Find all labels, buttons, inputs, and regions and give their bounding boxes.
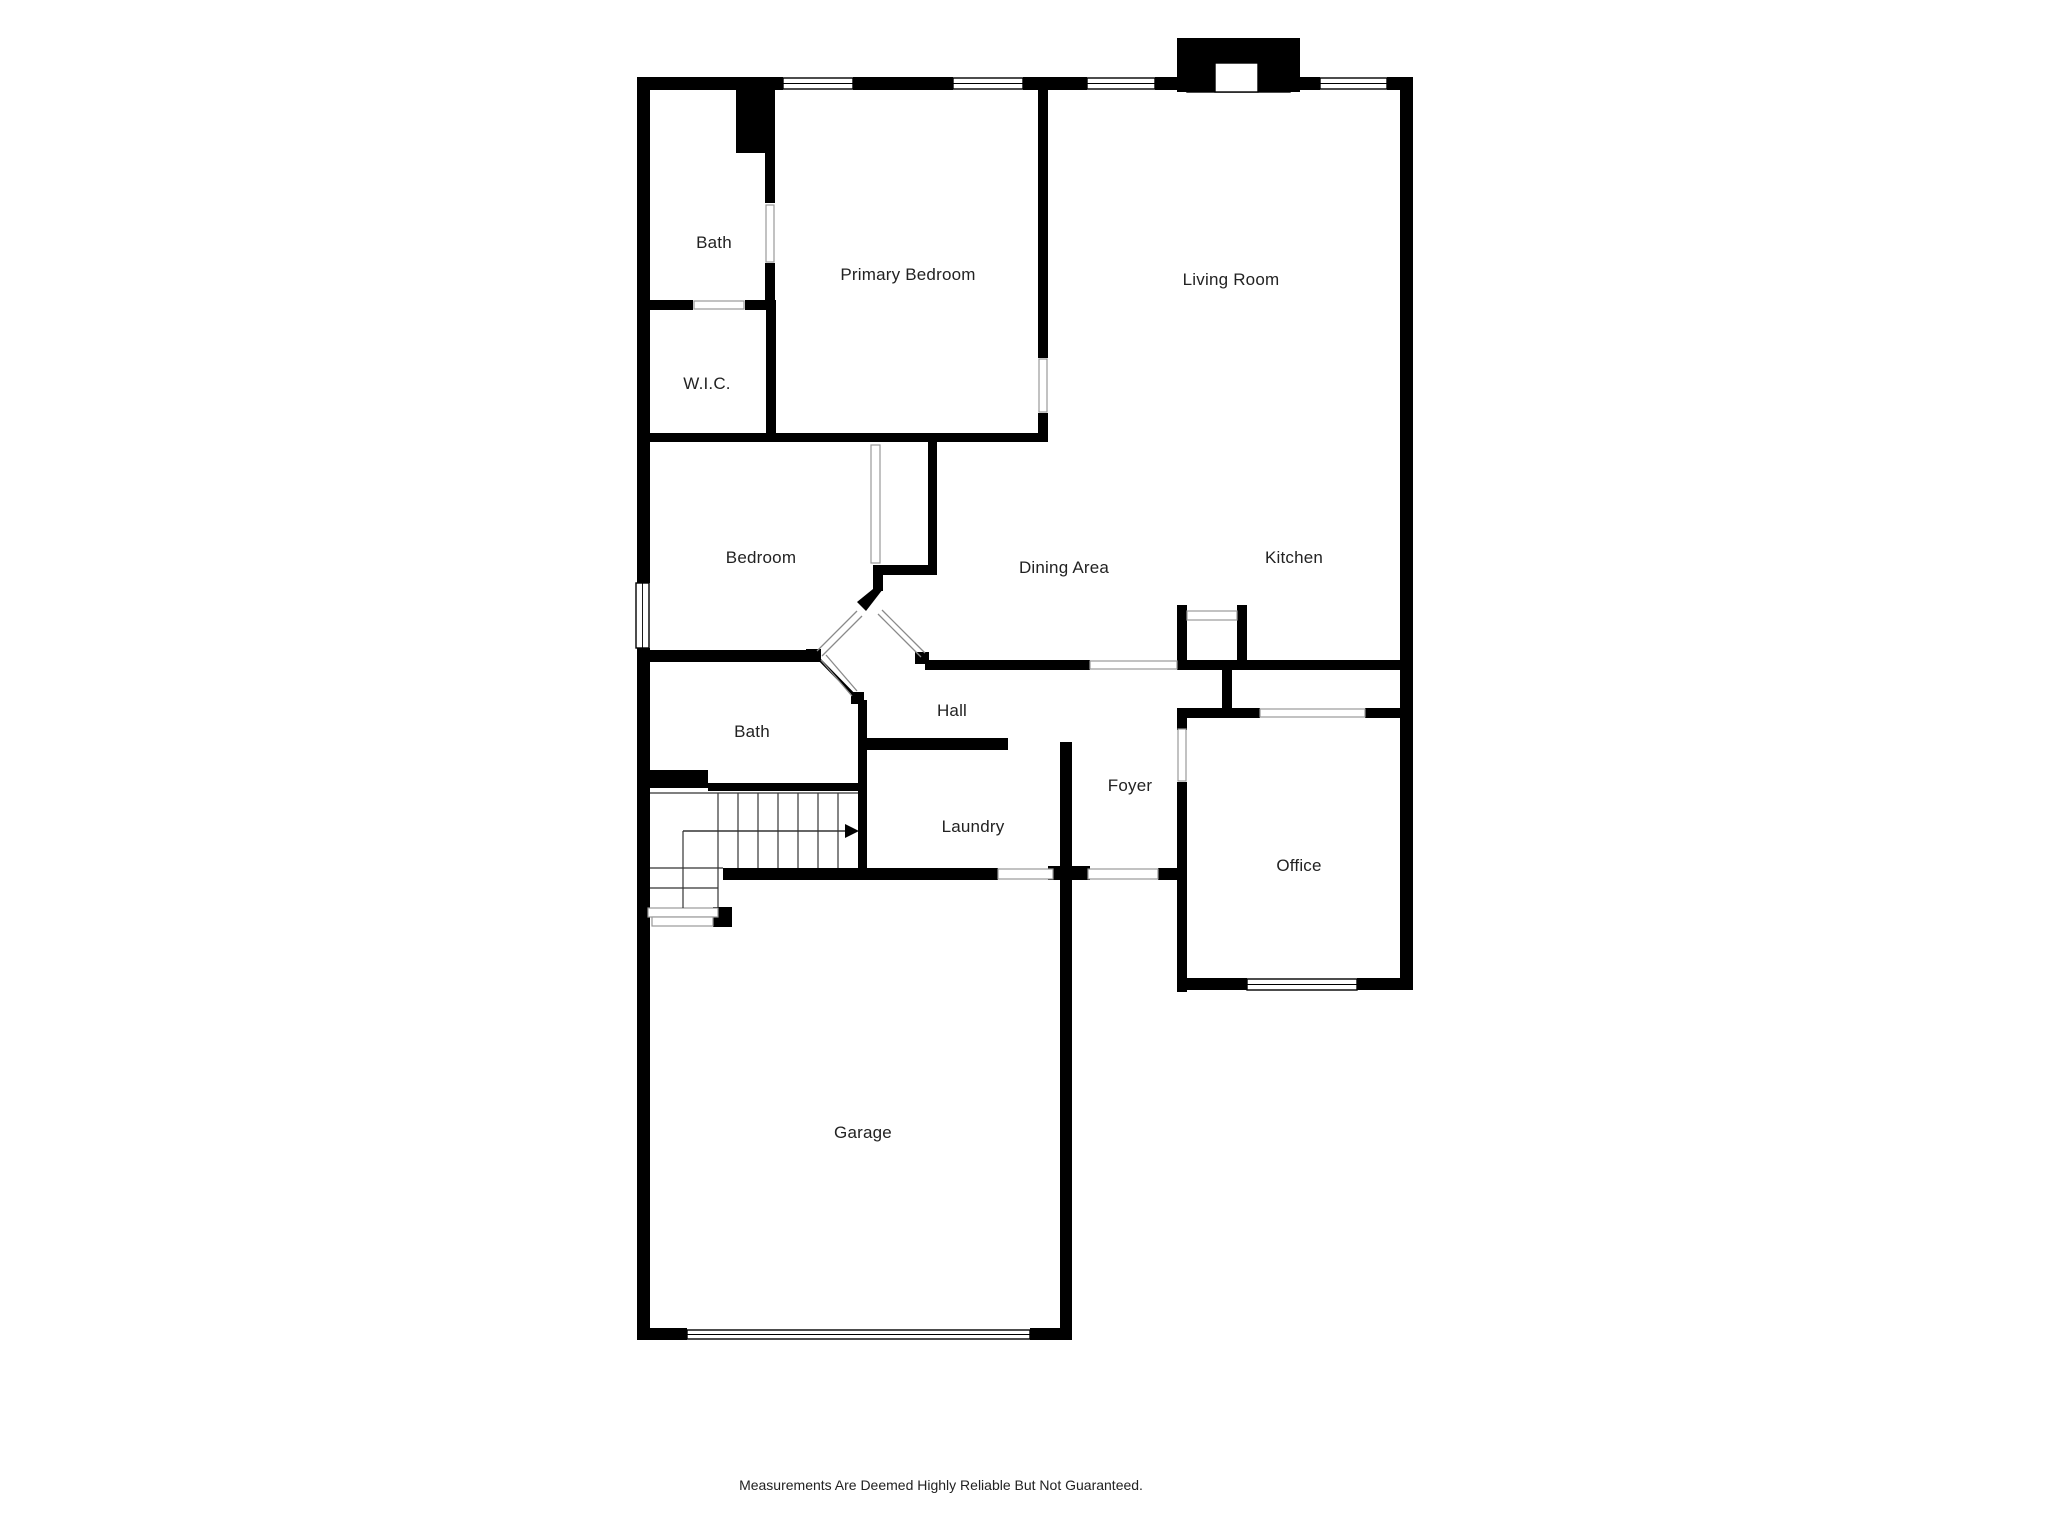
hall-door-leaves [817,610,925,696]
wall-segment [1300,77,1320,90]
wall-segment [867,738,1008,750]
wall-segment [1048,866,1090,880]
door-leaf-line [878,614,921,657]
wall-segment [637,77,783,90]
wall-segment [873,565,937,575]
wall-segment [637,1328,687,1340]
door-leaf-line [817,611,857,651]
wall-segment [873,575,883,591]
wall-segment [1177,708,1260,718]
interior-walls [637,90,1413,992]
wall-segment [1023,77,1087,90]
wall-segment [637,77,650,583]
door-openings [648,205,1365,926]
door-leaf [1178,729,1186,781]
front-door-opening [1088,869,1158,879]
cased-opening [1260,709,1365,717]
utility-chase-block [736,90,768,153]
stairs [650,793,859,908]
door-leaf [871,445,880,563]
door-opening [998,869,1053,879]
window [1087,78,1155,89]
wall-segment [1400,77,1413,990]
wall-segment [1177,978,1247,990]
door-opening [1039,359,1047,412]
window [1247,979,1357,990]
wall-segment [1365,708,1412,718]
wall-segment [637,300,693,310]
wall-segment [928,442,937,575]
wall-segment [1237,605,1247,670]
window [953,78,1023,89]
door-opening [766,205,774,262]
wall-segment [1038,90,1048,358]
disclaimer-text: Measurements Are Deemed Highly Reliable … [739,1477,1143,1493]
door-opening [652,917,713,926]
wall-segment [1177,660,1412,670]
cased-opening [1090,661,1177,669]
wall-segment [853,77,953,90]
wall-segment [637,650,813,662]
stair-threshold [648,908,718,917]
wall-segment [1177,782,1187,992]
garage-door [687,1330,1030,1339]
wall-segment [1177,605,1187,670]
pantry-opening [1187,611,1237,620]
wall-segment [637,648,650,1340]
door-opening [694,301,744,309]
wall-block [637,770,708,788]
window [1320,78,1387,89]
door-leaf-line [882,610,925,653]
window [636,583,649,648]
wall-segment [1038,413,1048,442]
wall-segment [745,300,776,310]
wall-chamfer [857,589,883,611]
wall-segment [858,700,867,870]
floor-plan-drawing [0,0,2048,1536]
door-leaf-line [822,616,862,656]
floor-plan-page: BathPrimary BedroomLiving RoomW.I.C.Bedr… [0,0,2048,1536]
wall-segment [1060,742,1072,1340]
wall-segment [1357,978,1413,990]
wall-segment [723,868,998,880]
wall-segment [637,433,1048,442]
wall-segment [1177,708,1187,730]
wall-segment [708,783,858,791]
fireplace-firebox [1215,63,1258,92]
wall-segment [766,310,776,442]
wall-segment [925,660,1090,670]
fireplace [1177,38,1300,92]
wall-segment [1158,868,1186,880]
stair-direction-arrow [845,824,859,838]
door-leaf-line [821,660,852,696]
window [783,78,853,89]
